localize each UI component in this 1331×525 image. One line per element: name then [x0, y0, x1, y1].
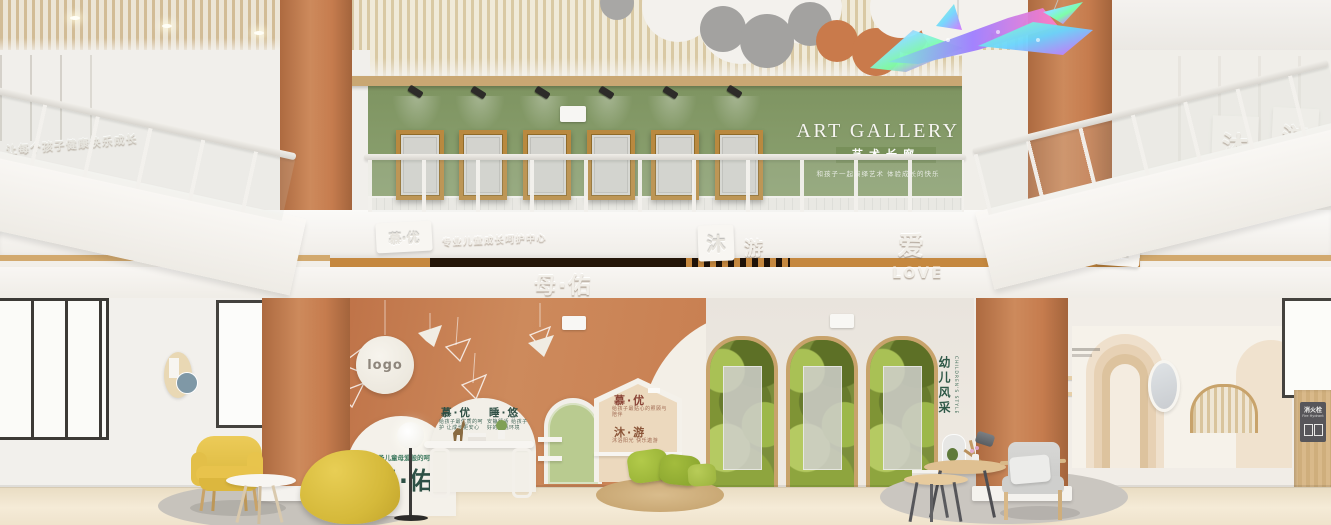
cloud-gray	[740, 14, 794, 68]
lower-right-window	[1282, 298, 1331, 398]
arched-grille	[1190, 384, 1258, 433]
display-panel	[723, 366, 762, 470]
fire-hydrant-sign: 消火栓 Fire Hydrant	[1300, 402, 1326, 442]
light-cone	[709, 96, 763, 134]
wall-ac-panel	[560, 106, 586, 122]
thermostat	[562, 316, 586, 330]
art-gallery-title: ART GALLERY	[786, 120, 970, 143]
fascia-mu-badge: 沐	[697, 224, 734, 261]
console-table-top	[424, 441, 534, 448]
text-line	[1072, 348, 1100, 351]
oval-mirror	[1148, 360, 1180, 412]
floor-lamp-base	[394, 515, 428, 521]
fascia-left-badge-label: 慕·优	[388, 227, 420, 248]
rainbow-arch	[1110, 364, 1140, 468]
decor-wall	[1072, 326, 1292, 468]
console-table-leg	[512, 448, 532, 498]
children-style-label-en: CHILDREN'S STYLE	[953, 356, 958, 414]
fire-hydrant-cn: 消火栓	[1300, 405, 1326, 414]
fascia-love-word: LOVE	[892, 266, 944, 282]
display-panel	[883, 366, 922, 470]
chair-leg-wood	[1058, 490, 1062, 520]
thermostat	[830, 314, 854, 328]
logo-text: logo	[367, 358, 403, 373]
downlight	[254, 31, 264, 35]
leaf-arch-niche	[706, 336, 778, 498]
white-pillow	[1009, 454, 1051, 484]
console-books	[468, 433, 486, 437]
house-caption-2: 沐浴阳光 快乐遨游	[612, 438, 668, 444]
console-plant-pot	[498, 430, 505, 439]
text-line	[1072, 354, 1092, 357]
light-cone	[453, 96, 507, 134]
arch-shelf	[538, 456, 562, 461]
terracotta-column-left-top	[280, 0, 352, 214]
downlight	[162, 24, 172, 28]
flower	[975, 446, 979, 450]
house-chip	[648, 388, 660, 393]
side-table-top	[226, 474, 296, 487]
floor-lamp-pole	[409, 448, 412, 518]
light-cone	[581, 96, 635, 134]
lower-left-windows	[0, 298, 109, 440]
table-leg-metal	[930, 484, 933, 522]
display-panel	[803, 366, 842, 470]
dome-title-2: 睡·悠	[489, 405, 520, 420]
gallery-railing-glass	[368, 160, 964, 212]
leaf-arch-niche	[786, 336, 858, 498]
hydrant-icon	[1304, 424, 1313, 436]
fire-hydrant-en: Fire Hydrant	[1300, 414, 1326, 418]
downlight	[70, 16, 80, 20]
flower	[970, 449, 974, 453]
green-pillow	[687, 463, 716, 487]
extinguisher-icon	[1314, 424, 1323, 436]
logo-circle: logo	[356, 336, 414, 394]
copper-strip-dark-segment	[430, 258, 680, 267]
cloud-gray	[700, 6, 746, 52]
fascia-love-char: 爱	[897, 226, 924, 264]
light-cone	[645, 96, 699, 134]
fascia-mu-char: 沐	[706, 229, 726, 257]
chair-leg-wood	[1004, 492, 1008, 520]
gray-chair-shadow	[1000, 506, 1080, 520]
house-caption-1: 给孩子最贴心的照顾与陪伴	[612, 406, 668, 418]
fascia-you-char: 游	[744, 234, 764, 262]
nesting-table-top-small	[904, 474, 968, 485]
floor-lamp-globe	[397, 422, 424, 449]
oval-sign-dot	[176, 372, 198, 394]
soffit-strip-right	[1140, 255, 1331, 261]
cloche-plant	[947, 448, 958, 461]
oval-sign-card	[169, 358, 179, 378]
atrium-rendering: 让每个孩子健康快乐成长 ART GALLERY 艺术长廊 和孩子一起演绎艺术 体…	[0, 0, 1331, 525]
light-cone	[390, 96, 444, 134]
children-style-label-cn: 幼儿风采	[936, 356, 953, 416]
books-stack	[912, 470, 938, 473]
console-table-leg	[430, 448, 450, 498]
holographic-bird-sculpture	[858, 0, 1118, 100]
green-arch-inner	[548, 403, 598, 484]
arch-shelf	[538, 437, 562, 442]
dome-caption-2: 安静舒适 给孩子好的睡眠环境	[487, 419, 531, 431]
fascia-left-badge: 慕·优	[375, 221, 432, 254]
copper-strip-slats	[680, 258, 790, 267]
